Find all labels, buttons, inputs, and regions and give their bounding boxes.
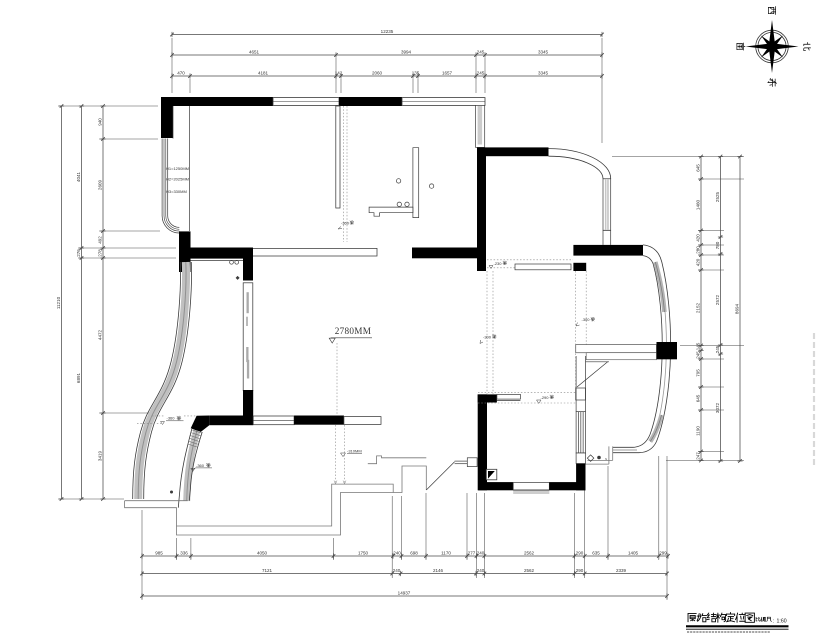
svg-text:1750: 1750 [358,550,369,555]
svg-text:-360: -360 [341,221,350,226]
svg-text:4651: 4651 [249,49,260,54]
svg-text:245: 245 [715,345,720,353]
svg-text:H2=2025MM: H2=2025MM [166,177,189,182]
svg-text:635: 635 [592,550,600,555]
svg-text:H1=1250MM: H1=1250MM [166,166,189,171]
svg-text:2780MM: 2780MM [335,326,372,336]
svg-text:6891: 6891 [76,372,81,383]
svg-text:2609: 2609 [97,179,102,190]
svg-text:3345: 3345 [538,49,549,54]
svg-text:1460: 1460 [695,199,700,210]
svg-text:3072: 3072 [715,402,720,413]
svg-text:-300: -300 [582,317,591,322]
svg-text:240: 240 [393,550,401,555]
svg-text:2525: 2525 [715,191,720,202]
svg-text:245: 245 [695,351,700,359]
svg-text:492: 492 [97,236,102,244]
svg-text:245: 245 [477,49,485,54]
svg-text:-360: -360 [167,416,176,421]
svg-text:3345: 3345 [538,70,549,75]
svg-text:2339: 2339 [616,568,627,573]
svg-text:8694: 8694 [734,303,739,314]
svg-text:470: 470 [177,70,185,75]
svg-text:940: 940 [97,118,102,126]
svg-text:420: 420 [695,234,700,242]
svg-text:11210: 11210 [56,296,61,309]
svg-text:2562: 2562 [524,568,535,573]
svg-text:3419: 3419 [97,450,102,461]
svg-text:290: 290 [576,568,584,573]
svg-text:7121: 7121 [262,568,273,573]
svg-text:4041: 4041 [76,171,81,182]
svg-text:645: 645 [695,394,700,402]
svg-text:280: 280 [695,246,700,254]
svg-text:299: 299 [659,550,667,555]
svg-text:-310MM: -310MM [347,448,362,453]
svg-text:2152: 2152 [695,302,700,313]
svg-text:336: 336 [180,550,188,555]
svg-text:240: 240 [477,568,485,573]
svg-text:290: 290 [576,550,584,555]
svg-text:-290: -290 [541,395,550,400]
svg-text:240: 240 [477,550,485,555]
svg-text:276: 276 [76,249,81,257]
svg-text:4050: 4050 [257,550,268,555]
svg-text:1405: 1405 [628,550,639,555]
svg-text:278: 278 [97,249,102,257]
svg-text:H3=330MM: H3=330MM [166,189,187,194]
svg-text:698: 698 [410,550,418,555]
svg-text:2572: 2572 [715,294,720,305]
svg-text:2060: 2060 [372,70,383,75]
svg-text:145: 145 [695,342,700,350]
svg-text:240: 240 [393,568,401,573]
svg-text:245: 245 [477,70,485,75]
svg-text:1190: 1190 [695,426,700,436]
svg-text:135: 135 [412,70,420,75]
svg-text:645: 645 [695,164,700,172]
svg-text:-360: -360 [196,463,205,468]
svg-text:-230: -230 [494,261,503,266]
svg-text:1170: 1170 [441,550,451,555]
svg-text:-300: -300 [483,335,492,340]
svg-text:2146: 2146 [433,568,444,573]
svg-text:4472: 4472 [97,329,102,340]
svg-text:795: 795 [695,369,700,377]
svg-text::: : [773,618,774,624]
svg-text:2562: 2562 [524,550,535,555]
svg-text:985: 985 [155,550,163,555]
svg-text:1657: 1657 [442,70,453,75]
svg-text:12235: 12235 [381,29,394,34]
svg-text:3994: 3994 [401,49,412,54]
svg-text:247: 247 [695,452,700,460]
svg-text:420: 420 [695,258,700,266]
svg-text:4181: 4181 [258,70,269,75]
svg-text:1:60: 1:60 [777,618,787,624]
svg-text:14937: 14937 [398,590,411,595]
svg-text:277: 277 [468,550,476,555]
